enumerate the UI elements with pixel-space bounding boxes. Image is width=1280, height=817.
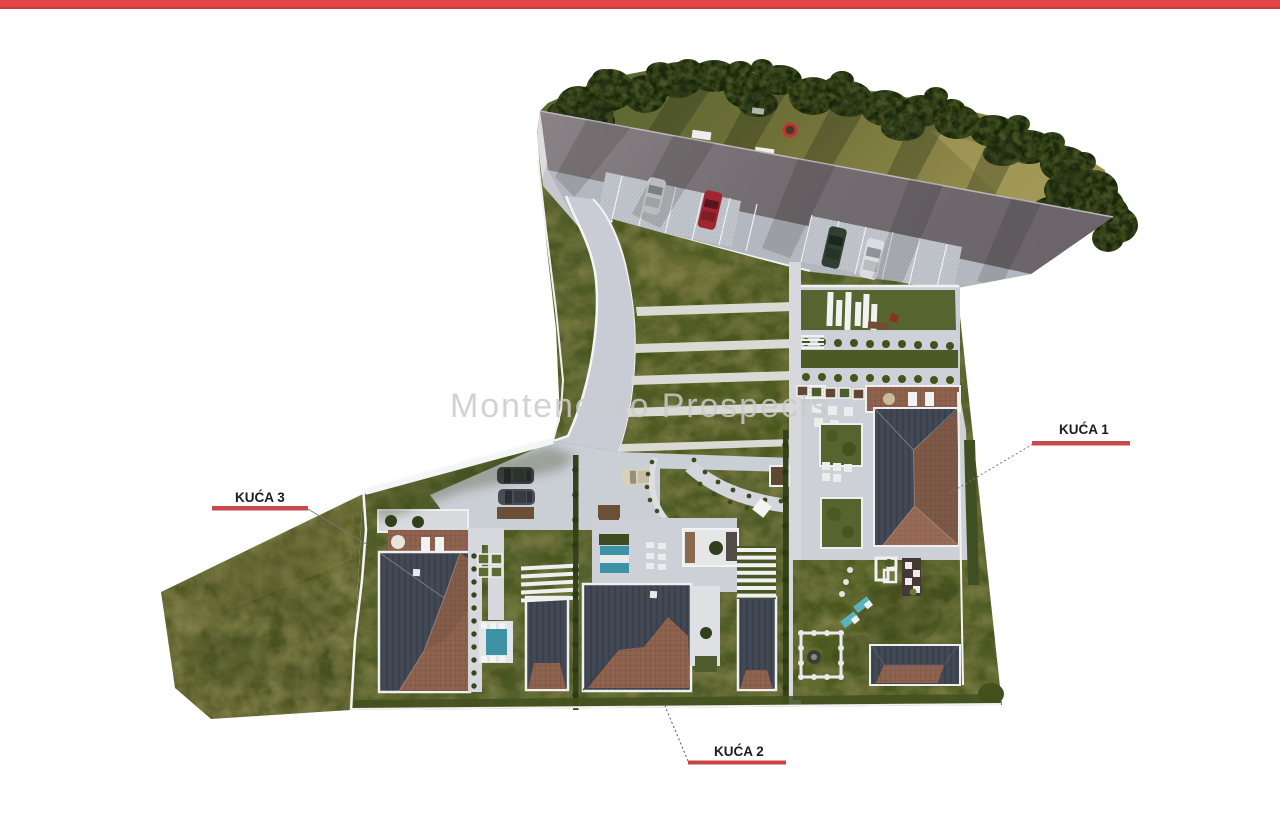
svg-text:KUĆA 1: KUĆA 1	[1059, 422, 1109, 437]
svg-text:Montenegro Prospects: Montenegro Prospects	[450, 387, 828, 425]
svg-text:KUĆA 2: KUĆA 2	[714, 744, 764, 759]
svg-text:KUĆA 3: KUĆA 3	[235, 490, 285, 505]
